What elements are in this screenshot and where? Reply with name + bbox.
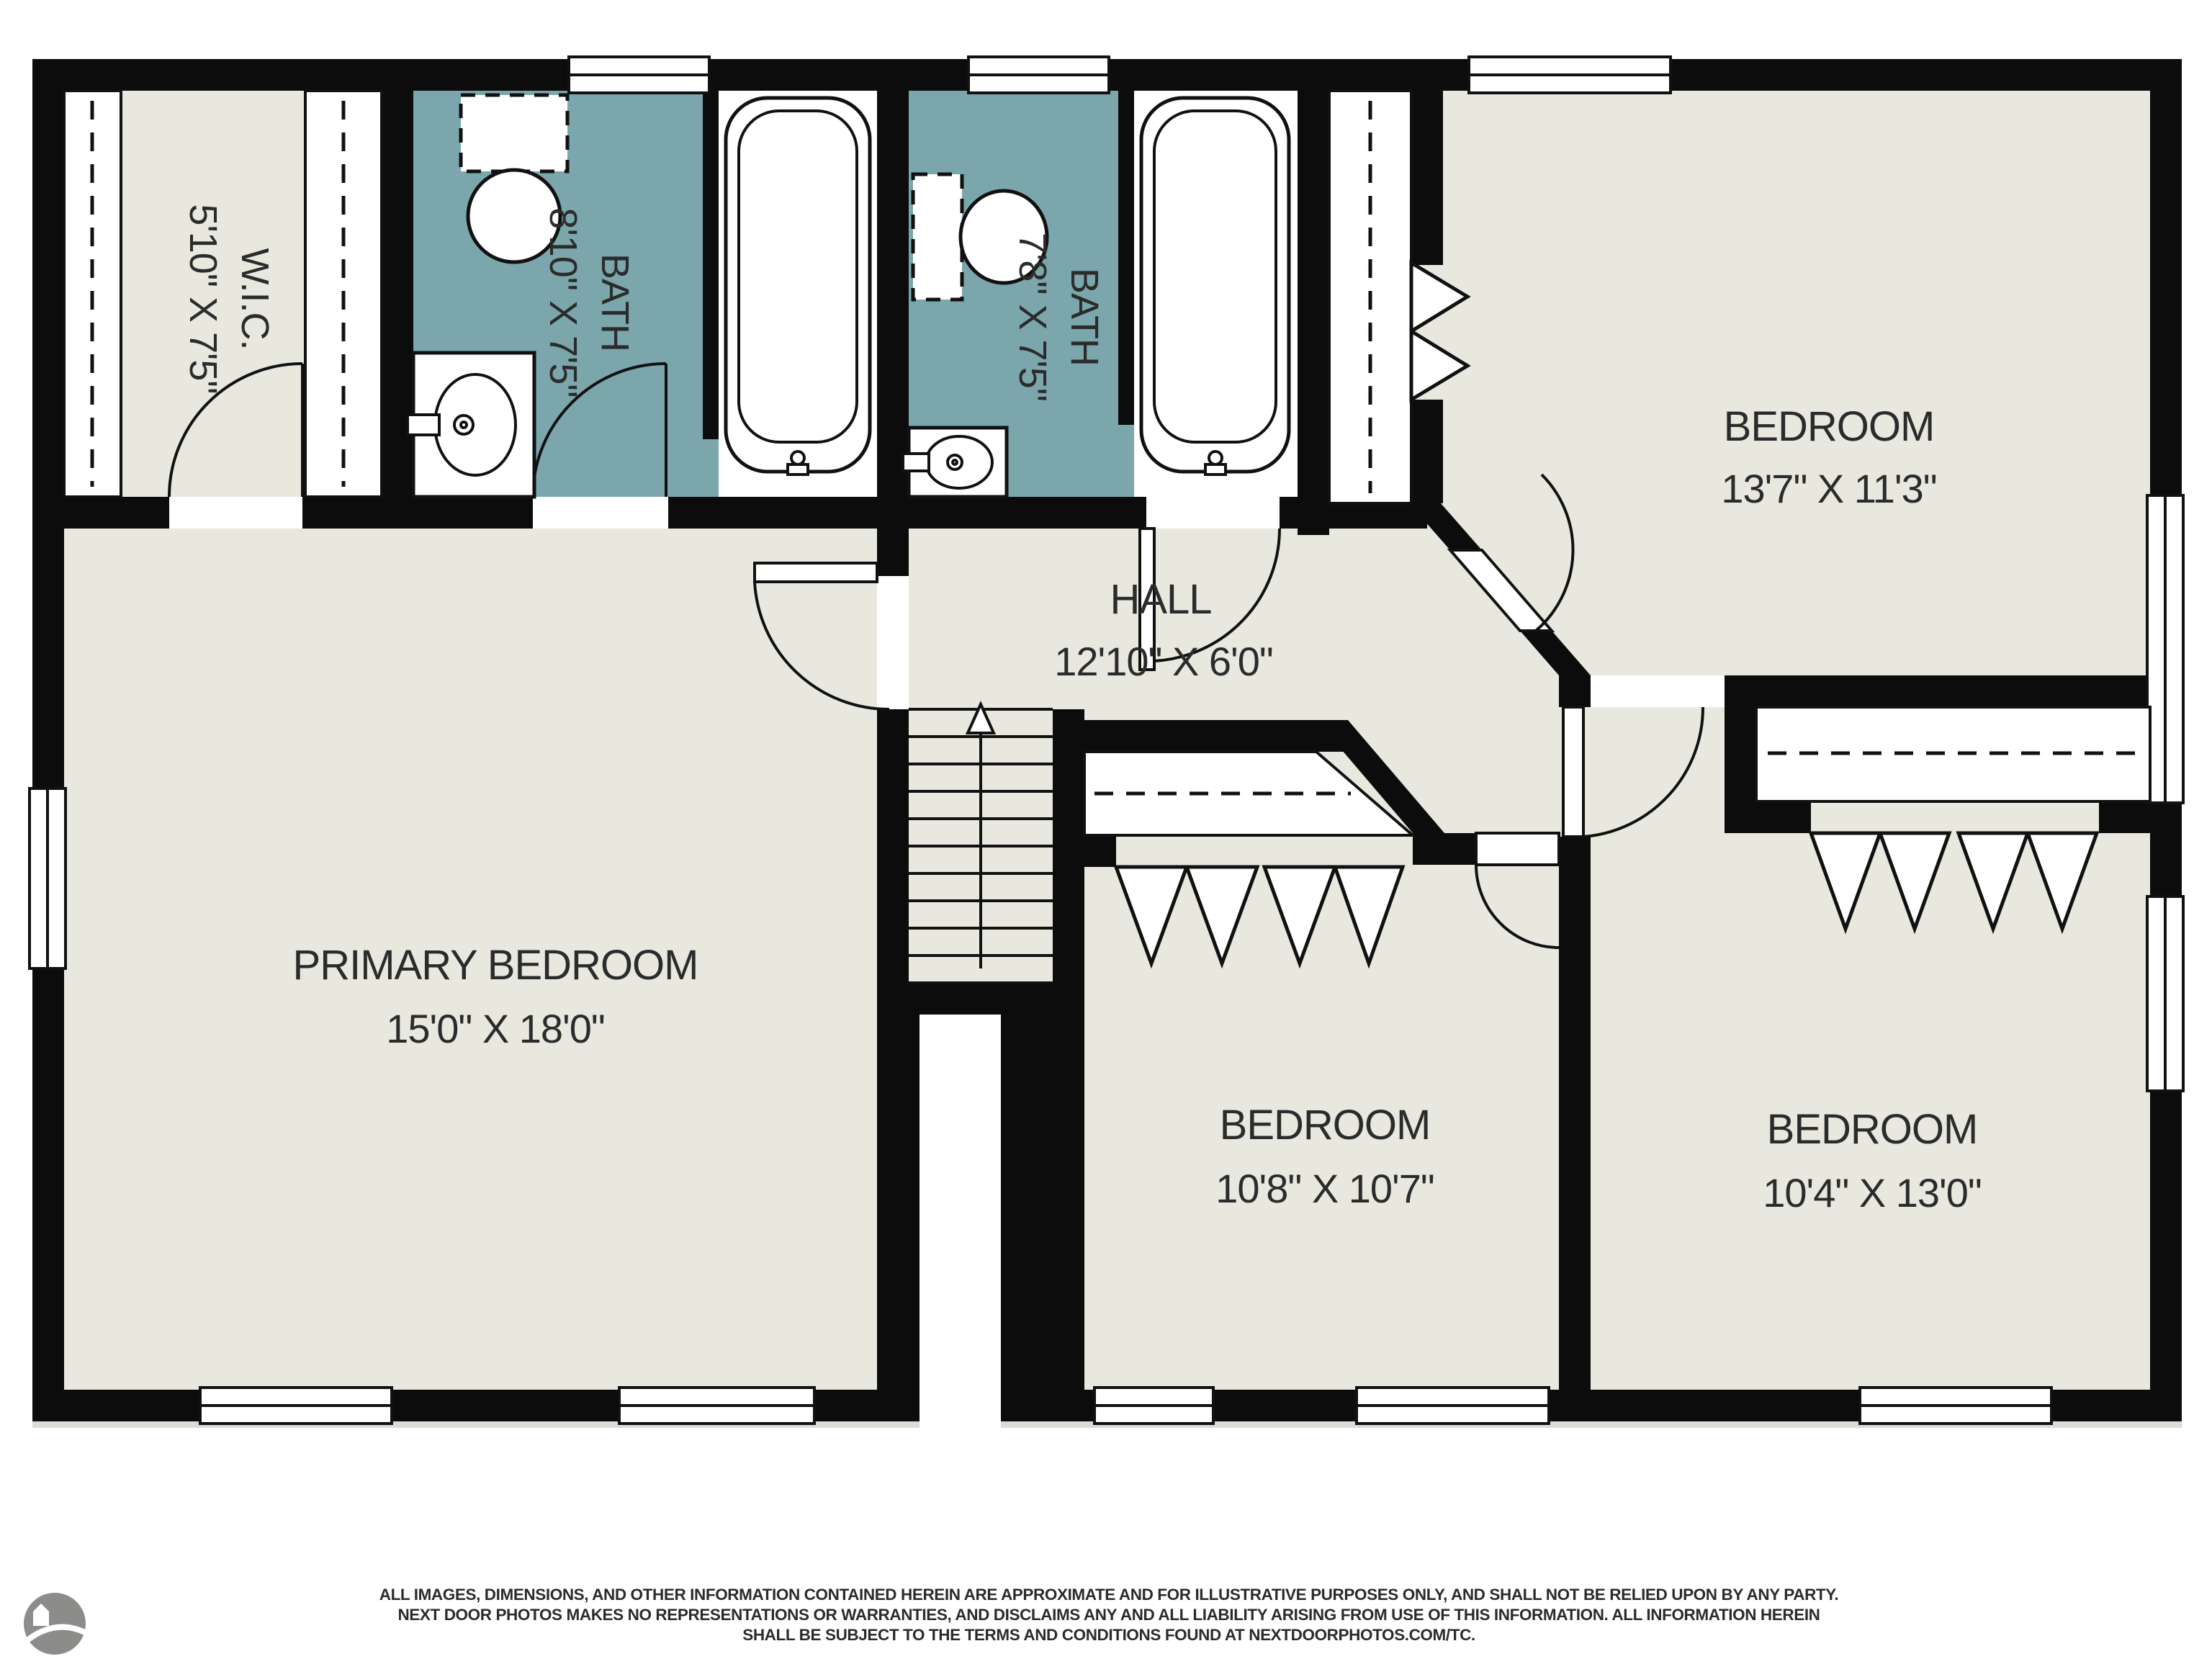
room-name: BEDROOM: [1724, 403, 1935, 450]
room-name: BEDROOM: [1220, 1102, 1431, 1148]
room-dims: 10'8" X 10'7": [1215, 1166, 1434, 1211]
bathtub-icon: [726, 98, 870, 475]
closet-rod: [1329, 91, 1411, 503]
closet-rod: [305, 91, 382, 497]
disclaimer: ALL IMAGES, DIMENSIONS, AND OTHER INFORM…: [379, 1586, 1839, 1644]
disclaimer-line: NEXT DOOR PHOTOS MAKES NO REPRESENTATION…: [397, 1606, 1820, 1624]
logo-icon: [24, 1593, 86, 1655]
bathtub-icon: [1141, 98, 1289, 475]
room-dims: 15'0" X 18'0": [386, 1006, 604, 1051]
room-name: PRIMARY BEDROOM: [293, 942, 698, 989]
disclaimer-line: SHALL BE SUBJECT TO THE TERMS AND CONDIT…: [742, 1626, 1475, 1644]
disclaimer-line: ALL IMAGES, DIMENSIONS, AND OTHER INFORM…: [379, 1586, 1839, 1604]
window: [1469, 57, 1671, 93]
room-dims: 7'8" X 7'5": [1011, 233, 1054, 401]
window: [200, 1388, 392, 1424]
room-dims: 13'7" X 11'3": [1721, 466, 1936, 511]
window: [1357, 1388, 1549, 1424]
window: [1094, 1388, 1213, 1424]
window: [2147, 896, 2183, 1091]
sink-icon: [408, 353, 534, 497]
closet-shelf: [1756, 707, 2150, 801]
room-name: HALL: [1110, 576, 1211, 623]
room-name: BEDROOM: [1767, 1106, 1978, 1153]
window: [968, 57, 1109, 93]
room-name: W.I.C.: [233, 248, 276, 350]
room-dims: 12'10" X 6'0": [1054, 639, 1272, 684]
footer: ALL IMAGES, DIMENSIONS, AND OTHER INFORM…: [24, 1586, 1838, 1655]
window: [30, 788, 66, 968]
room-dims: 10'4" X 13'0": [1763, 1170, 1981, 1215]
room-dims: 5'10" X 7'5": [181, 204, 225, 393]
window: [569, 57, 709, 93]
stair-void: [920, 1015, 1001, 1429]
window: [1860, 1388, 2051, 1424]
window: [619, 1388, 814, 1424]
room-dims: 8'10" X 7'5": [541, 207, 585, 397]
sink-icon: [903, 428, 1007, 497]
floor-plan-image: W.I.C. 5'10" X 7'5" BATH 8'10" X 7'5" BA…: [0, 0, 2212, 1659]
room-name: BATH: [1063, 268, 1106, 366]
page: W.I.C. 5'10" X 7'5" BATH 8'10" X 7'5" BA…: [0, 0, 2212, 1659]
closet-rod: [64, 91, 121, 497]
window: [2147, 495, 2183, 803]
room-name: BATH: [593, 253, 637, 351]
